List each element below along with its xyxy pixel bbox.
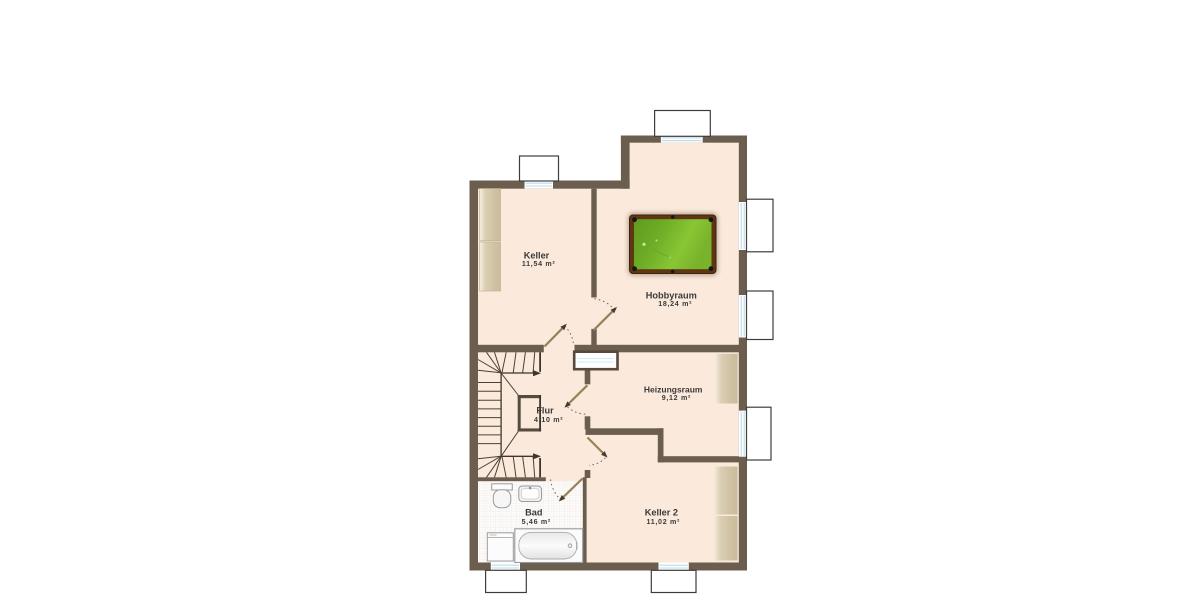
svg-text:Flur: Flur [536, 405, 554, 415]
svg-text:Keller: Keller [524, 250, 550, 260]
svg-text:18,24 m²: 18,24 m² [658, 300, 692, 308]
svg-text:5,46 m²: 5,46 m² [522, 518, 551, 526]
svg-text:11,54 m²: 11,54 m² [522, 260, 556, 268]
svg-text:9,12 m²: 9,12 m² [662, 394, 691, 402]
svg-text:Hobbyraum: Hobbyraum [646, 290, 697, 300]
svg-text:4,10 m²: 4,10 m² [534, 416, 563, 424]
svg-text:Bad: Bad [525, 508, 542, 518]
svg-text:11,02 m²: 11,02 m² [646, 518, 680, 526]
svg-text:Keller 2: Keller 2 [645, 507, 678, 517]
